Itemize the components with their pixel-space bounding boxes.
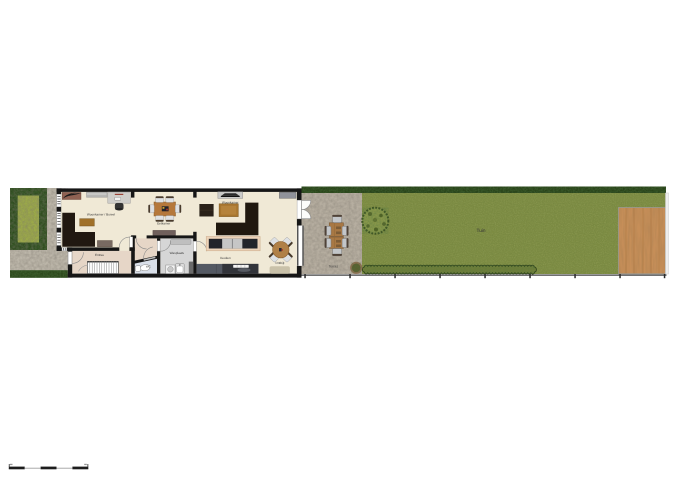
svg-text:Entree: Entree [95,253,104,257]
svg-text:Woonkamer / Bureel: Woonkamer / Bureel [87,213,115,217]
svg-text:Keuken: Keuken [220,256,231,260]
svg-text:Tuin: Tuin [476,228,485,233]
svg-text:WC: WC [146,265,151,268]
svg-text:Wasplaats: Wasplaats [170,251,184,255]
svg-text:Woonkamer: Woonkamer [222,201,239,205]
svg-text:Terras: Terras [329,264,338,268]
svg-text:Ontbijt: Ontbijt [275,261,284,265]
svg-text:Eetkamer: Eetkamer [157,222,170,226]
